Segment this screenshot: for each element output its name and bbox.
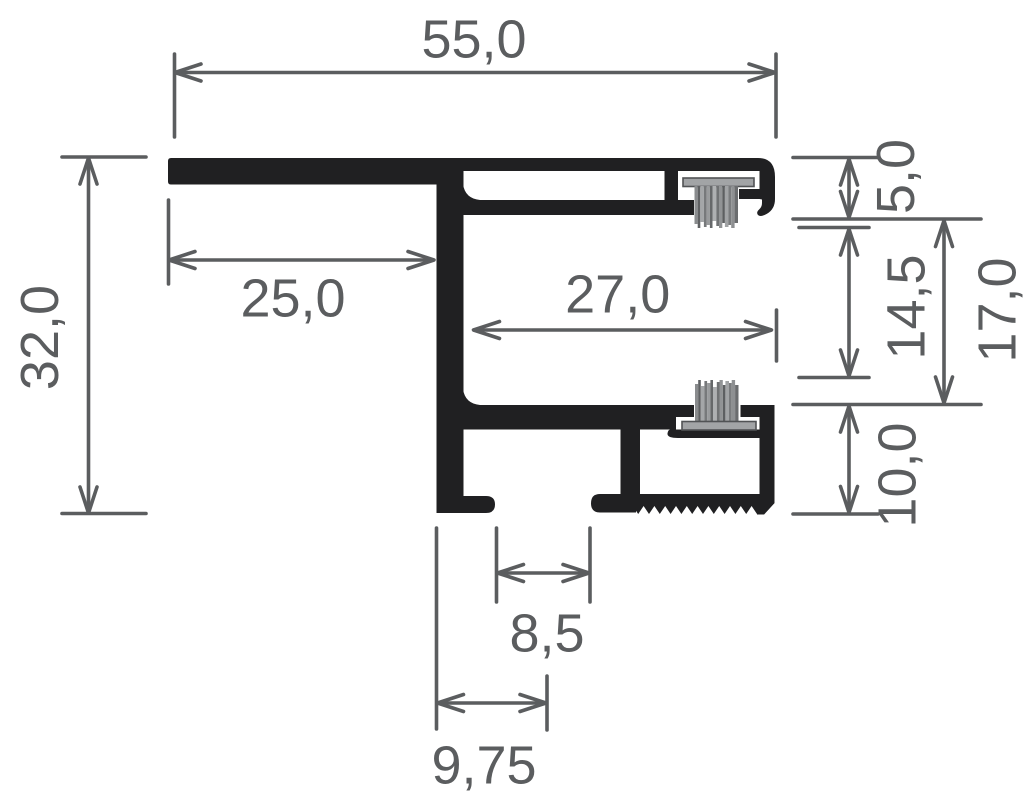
svg-text:5,0: 5,0 bbox=[866, 139, 926, 214]
svg-text:27,0: 27,0 bbox=[565, 265, 670, 325]
svg-text:10,0: 10,0 bbox=[868, 422, 928, 527]
svg-text:17,0: 17,0 bbox=[968, 257, 1023, 362]
svg-text:55,0: 55,0 bbox=[421, 10, 526, 70]
svg-text:8,5: 8,5 bbox=[509, 604, 584, 664]
svg-text:14,5: 14,5 bbox=[877, 254, 937, 359]
svg-text:32,0: 32,0 bbox=[10, 285, 70, 390]
svg-text:25,0: 25,0 bbox=[240, 269, 345, 329]
svg-text:9,75: 9,75 bbox=[431, 736, 536, 796]
